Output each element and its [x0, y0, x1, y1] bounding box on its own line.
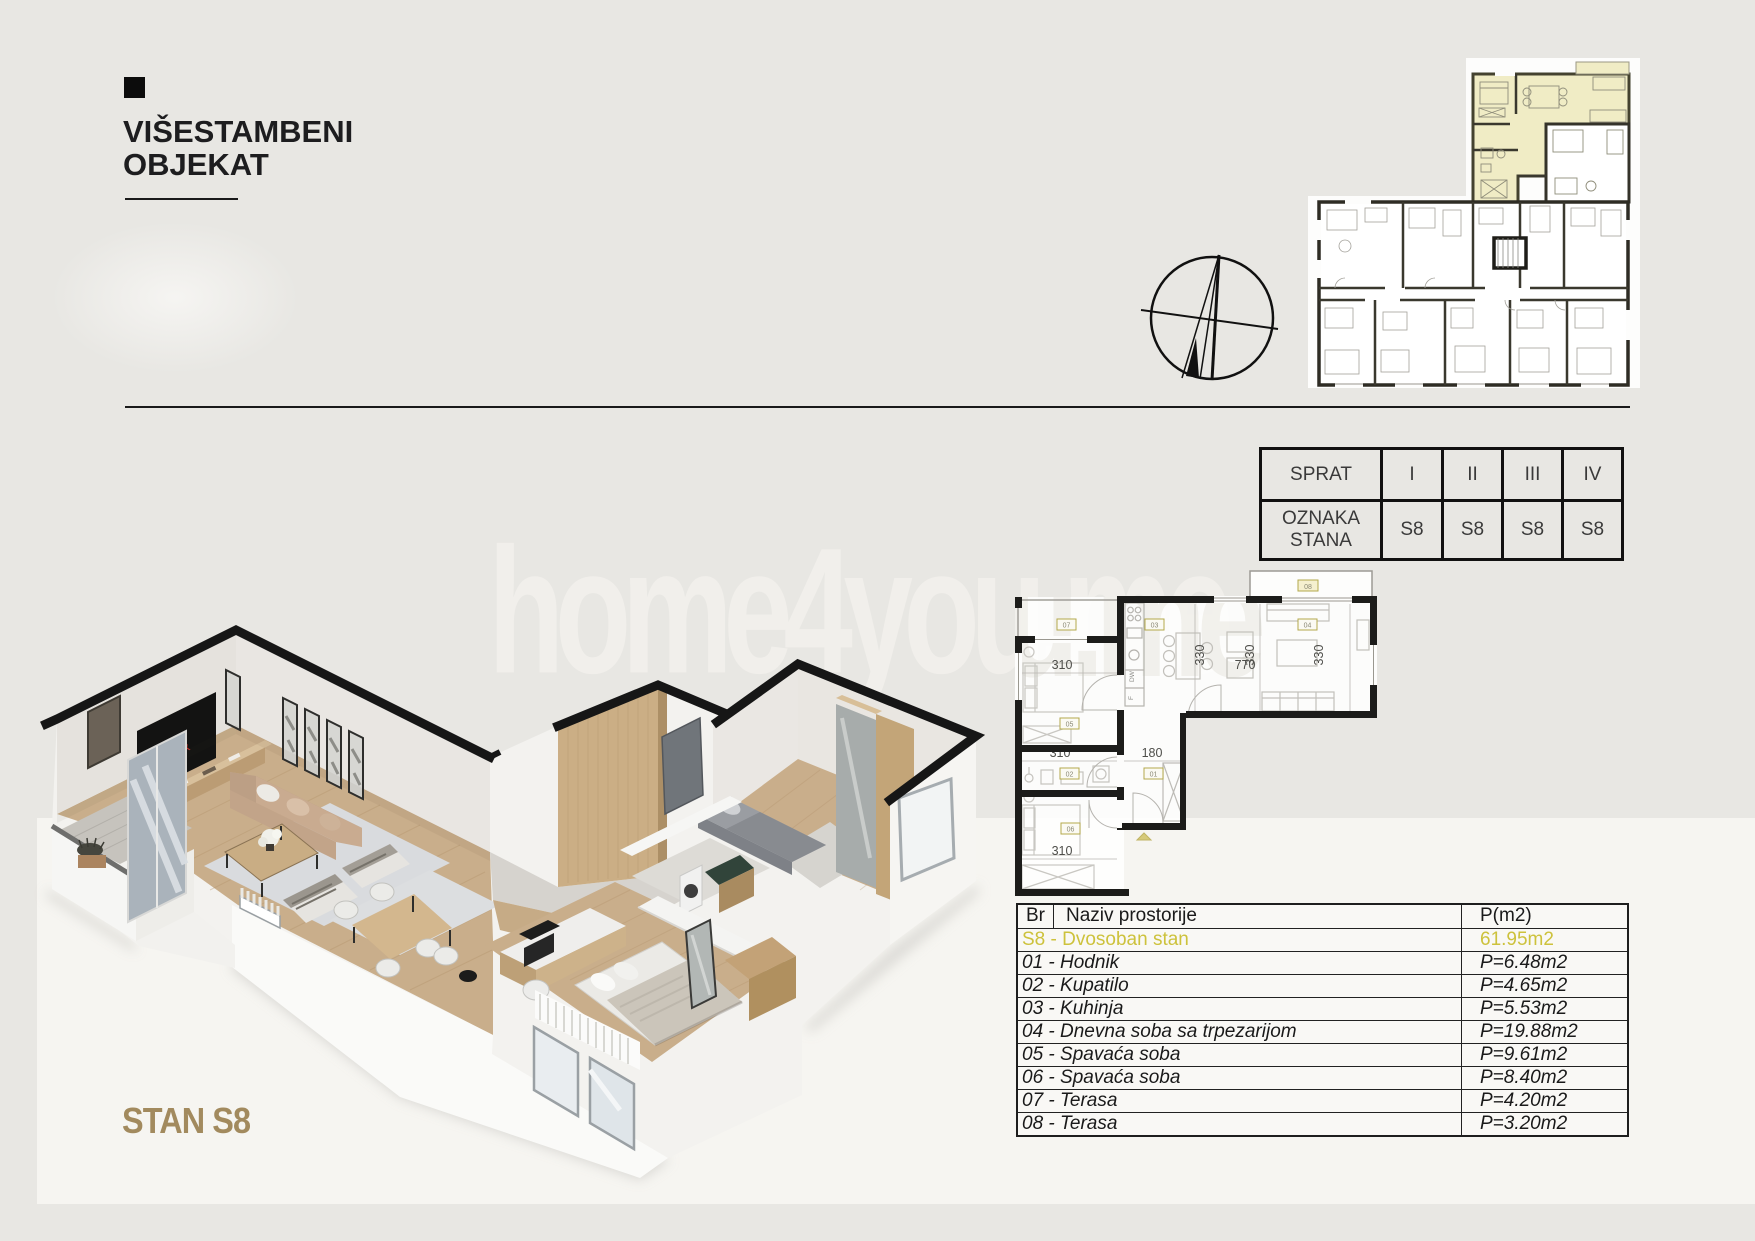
- svg-text:F: F: [1128, 696, 1135, 700]
- svg-text:07: 07: [1063, 623, 1071, 630]
- svg-text:310: 310: [1052, 658, 1073, 672]
- svg-text:08: 08: [1304, 584, 1312, 591]
- svg-text:330: 330: [1193, 645, 1207, 666]
- svg-text:03: 03: [1151, 623, 1159, 630]
- svg-text:330: 330: [1243, 645, 1257, 666]
- svg-text:02: 02: [1066, 772, 1074, 779]
- svg-text:06: 06: [1067, 827, 1075, 834]
- svg-text:DW: DW: [1129, 670, 1136, 682]
- svg-text:180: 180: [1142, 746, 1163, 760]
- svg-text:310: 310: [1052, 844, 1073, 858]
- svg-text:01: 01: [1150, 772, 1158, 779]
- svg-text:330: 330: [1312, 645, 1326, 666]
- svg-text:04: 04: [1304, 623, 1312, 630]
- svg-text:05: 05: [1066, 722, 1074, 729]
